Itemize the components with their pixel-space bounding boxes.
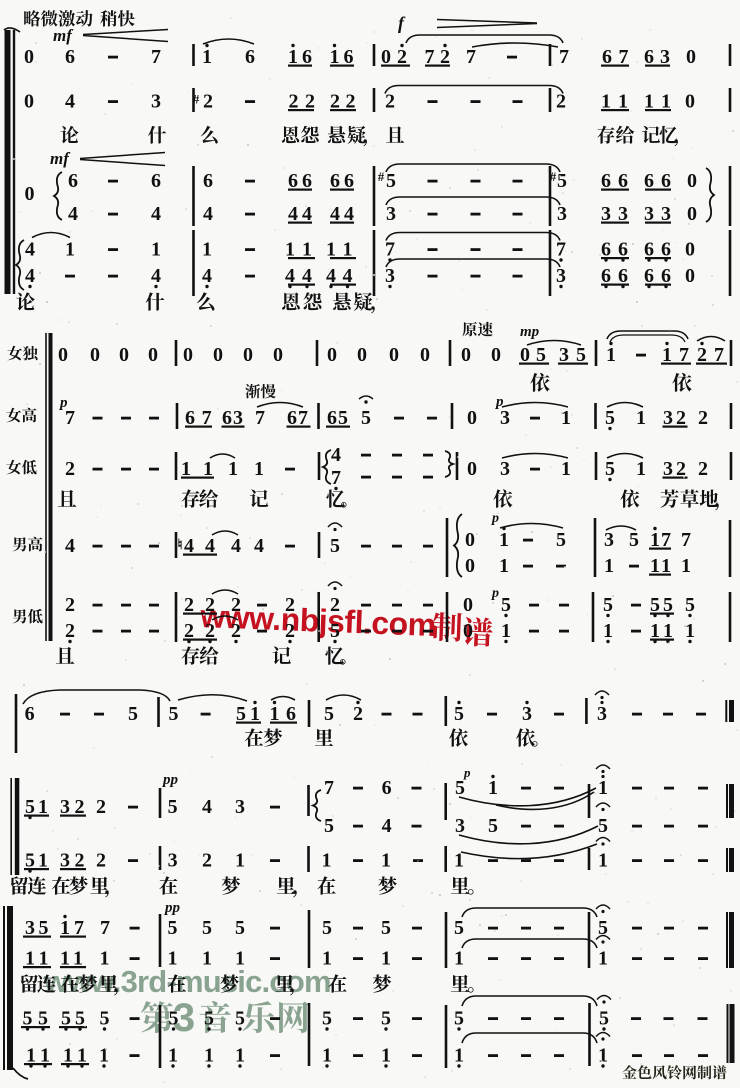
svg-text:5: 5 bbox=[330, 535, 340, 557]
svg-text:6: 6 bbox=[203, 170, 213, 192]
svg-text:7: 7 bbox=[151, 46, 161, 68]
svg-text:1: 1 bbox=[501, 620, 511, 642]
svg-text:0: 0 bbox=[420, 344, 430, 366]
svg-text:5: 5 bbox=[557, 170, 567, 192]
svg-text:0: 0 bbox=[465, 529, 475, 551]
svg-text:0: 0 bbox=[465, 555, 475, 577]
svg-text:5: 5 bbox=[605, 458, 615, 480]
svg-text:2: 2 bbox=[96, 850, 106, 872]
svg-text:3: 3 bbox=[385, 265, 395, 287]
svg-text:5: 5 bbox=[685, 594, 695, 616]
svg-text:5: 5 bbox=[322, 917, 332, 939]
svg-text:4: 4 bbox=[151, 265, 161, 287]
svg-text:1: 1 bbox=[598, 948, 608, 970]
svg-text:7: 7 bbox=[559, 46, 569, 68]
svg-text:0: 0 bbox=[148, 344, 158, 366]
svg-text:p: p bbox=[463, 765, 471, 780]
svg-text:2: 2 bbox=[202, 850, 212, 872]
svg-text:1: 1 bbox=[228, 458, 238, 480]
svg-text:4: 4 bbox=[382, 815, 392, 837]
svg-text:3: 3 bbox=[455, 815, 465, 837]
svg-text:7: 7 bbox=[100, 917, 110, 939]
svg-text:1: 1 bbox=[606, 344, 616, 366]
svg-text:1: 1 bbox=[204, 1045, 214, 1067]
svg-text:1: 1 bbox=[381, 948, 391, 970]
svg-text:2: 2 bbox=[65, 620, 75, 642]
svg-text:mf: mf bbox=[50, 149, 71, 168]
svg-text:0: 0 bbox=[491, 344, 501, 366]
svg-text:1: 1 bbox=[100, 948, 110, 970]
svg-text:0: 0 bbox=[213, 344, 223, 366]
svg-text:5: 5 bbox=[204, 1008, 214, 1030]
svg-text:5: 5 bbox=[322, 1008, 332, 1030]
svg-text:1: 1 bbox=[598, 1045, 608, 1067]
svg-text:6: 6 bbox=[25, 703, 35, 725]
svg-text:5: 5 bbox=[235, 1008, 245, 1030]
svg-text:1: 1 bbox=[598, 850, 608, 872]
svg-text:0: 0 bbox=[90, 344, 100, 366]
svg-text:0: 0 bbox=[389, 344, 399, 366]
svg-text:1: 1 bbox=[322, 850, 332, 872]
svg-text:1: 1 bbox=[235, 850, 245, 872]
svg-text:6: 6 bbox=[382, 777, 392, 799]
svg-text:7: 7 bbox=[556, 239, 566, 261]
svg-text:5: 5 bbox=[501, 594, 511, 616]
svg-text:5: 5 bbox=[599, 1008, 609, 1030]
svg-text:6: 6 bbox=[245, 46, 255, 68]
svg-text:3: 3 bbox=[556, 265, 566, 287]
svg-text:4: 4 bbox=[203, 203, 213, 225]
svg-text:0: 0 bbox=[327, 344, 337, 366]
svg-text:2: 2 bbox=[203, 91, 213, 113]
svg-text:5: 5 bbox=[202, 917, 212, 939]
svg-text:6: 6 bbox=[65, 46, 75, 68]
svg-text:5: 5 bbox=[100, 1008, 110, 1030]
svg-text:2: 2 bbox=[698, 458, 708, 480]
svg-text:2: 2 bbox=[698, 407, 708, 429]
svg-text:1: 1 bbox=[636, 407, 646, 429]
svg-text:1: 1 bbox=[254, 458, 264, 480]
svg-text:6: 6 bbox=[68, 170, 78, 192]
svg-text:0: 0 bbox=[273, 344, 283, 366]
svg-text:4: 4 bbox=[65, 535, 75, 557]
svg-text:1: 1 bbox=[168, 948, 178, 970]
svg-text:5: 5 bbox=[381, 917, 391, 939]
svg-text:5: 5 bbox=[386, 170, 396, 192]
svg-text:2: 2 bbox=[65, 594, 75, 616]
svg-text:1: 1 bbox=[235, 948, 245, 970]
svg-text:5: 5 bbox=[603, 594, 613, 616]
svg-text:0: 0 bbox=[24, 91, 34, 113]
svg-text:5: 5 bbox=[454, 703, 464, 725]
svg-text:1: 1 bbox=[235, 1045, 245, 1067]
svg-text:1: 1 bbox=[603, 620, 613, 642]
svg-text:7: 7 bbox=[466, 46, 476, 68]
svg-text:7: 7 bbox=[324, 777, 334, 799]
svg-text:3: 3 bbox=[235, 796, 245, 818]
svg-text:0: 0 bbox=[685, 239, 695, 261]
svg-text:5: 5 bbox=[361, 407, 371, 429]
svg-text:0: 0 bbox=[686, 46, 696, 68]
svg-text:3: 3 bbox=[500, 458, 510, 480]
svg-text:0: 0 bbox=[58, 344, 68, 366]
svg-text:5: 5 bbox=[128, 703, 138, 725]
svg-text:1: 1 bbox=[488, 777, 498, 799]
svg-text:0: 0 bbox=[357, 344, 367, 366]
svg-text:#: # bbox=[378, 169, 385, 184]
svg-text:5: 5 bbox=[488, 815, 498, 837]
svg-text:3: 3 bbox=[557, 203, 567, 225]
svg-text:4: 4 bbox=[25, 239, 35, 261]
svg-text:1: 1 bbox=[202, 46, 212, 68]
svg-text:p: p bbox=[491, 586, 499, 601]
svg-text:5: 5 bbox=[454, 1008, 464, 1030]
svg-text:4: 4 bbox=[68, 203, 78, 225]
svg-text:0: 0 bbox=[467, 458, 477, 480]
svg-text:5: 5 bbox=[629, 529, 639, 551]
svg-text:3: 3 bbox=[500, 407, 510, 429]
svg-text:5: 5 bbox=[330, 620, 340, 642]
svg-text:1: 1 bbox=[681, 555, 691, 577]
svg-text:#: # bbox=[550, 169, 557, 184]
svg-text:3: 3 bbox=[597, 703, 607, 725]
svg-text:pp: pp bbox=[161, 772, 179, 788]
svg-text:2: 2 bbox=[385, 91, 395, 113]
svg-text:4: 4 bbox=[151, 203, 161, 225]
svg-text:7: 7 bbox=[331, 467, 341, 489]
svg-text:3: 3 bbox=[522, 703, 532, 725]
svg-text:3: 3 bbox=[151, 91, 161, 113]
svg-text:0: 0 bbox=[25, 183, 35, 205]
svg-text:3: 3 bbox=[168, 850, 178, 872]
svg-text:5: 5 bbox=[381, 1008, 391, 1030]
svg-text:5: 5 bbox=[235, 917, 245, 939]
svg-text:0: 0 bbox=[463, 594, 473, 616]
svg-text:1: 1 bbox=[168, 1045, 178, 1067]
svg-text:1: 1 bbox=[322, 1045, 332, 1067]
svg-text:7: 7 bbox=[385, 239, 395, 261]
svg-text:2: 2 bbox=[330, 594, 340, 616]
svg-text:1: 1 bbox=[322, 948, 332, 970]
svg-text:4: 4 bbox=[65, 91, 75, 113]
svg-text:1: 1 bbox=[561, 458, 571, 480]
svg-text:1: 1 bbox=[202, 948, 212, 970]
svg-text:4: 4 bbox=[202, 265, 212, 287]
svg-text:1: 1 bbox=[499, 529, 509, 551]
svg-text:4: 4 bbox=[231, 535, 241, 557]
svg-text:#: # bbox=[193, 92, 200, 107]
svg-text:5: 5 bbox=[169, 1008, 179, 1030]
svg-text:0: 0 bbox=[687, 203, 697, 225]
svg-text:7: 7 bbox=[681, 529, 691, 551]
svg-text:4: 4 bbox=[331, 444, 341, 466]
svg-text:1: 1 bbox=[598, 777, 608, 799]
svg-text:2: 2 bbox=[285, 620, 295, 642]
svg-text:0: 0 bbox=[243, 344, 253, 366]
svg-text:4: 4 bbox=[254, 535, 264, 557]
svg-text:5: 5 bbox=[168, 796, 178, 818]
svg-text:1: 1 bbox=[636, 458, 646, 480]
svg-text:0: 0 bbox=[183, 344, 193, 366]
svg-text:3: 3 bbox=[604, 529, 614, 551]
svg-text:0: 0 bbox=[24, 46, 34, 68]
svg-text:5: 5 bbox=[324, 703, 334, 725]
svg-text:mp: mp bbox=[520, 324, 540, 340]
svg-text:1: 1 bbox=[202, 239, 212, 261]
svg-text:5: 5 bbox=[455, 777, 465, 799]
svg-text:2: 2 bbox=[353, 703, 363, 725]
svg-text:1: 1 bbox=[685, 620, 695, 642]
svg-text:2: 2 bbox=[231, 594, 241, 616]
svg-text:1: 1 bbox=[499, 555, 509, 577]
svg-text:0: 0 bbox=[685, 265, 695, 287]
svg-text:6: 6 bbox=[151, 170, 161, 192]
svg-text:0: 0 bbox=[687, 170, 697, 192]
svg-text:2: 2 bbox=[556, 91, 566, 113]
svg-text:2: 2 bbox=[285, 594, 295, 616]
svg-text:5: 5 bbox=[556, 529, 566, 551]
svg-text:0: 0 bbox=[463, 620, 473, 642]
svg-text:7: 7 bbox=[255, 407, 265, 429]
svg-text:5: 5 bbox=[324, 815, 334, 837]
svg-text:♮: ♮ bbox=[177, 538, 182, 553]
svg-text:5: 5 bbox=[168, 917, 178, 939]
svg-text:1: 1 bbox=[99, 1045, 109, 1067]
svg-text:0: 0 bbox=[467, 407, 477, 429]
svg-text:5: 5 bbox=[454, 917, 464, 939]
svg-text:1: 1 bbox=[561, 407, 571, 429]
svg-text:1: 1 bbox=[151, 239, 161, 261]
svg-text:0: 0 bbox=[685, 91, 695, 113]
svg-text:mf: mf bbox=[53, 26, 74, 45]
svg-text:2: 2 bbox=[231, 620, 241, 642]
svg-text:7: 7 bbox=[65, 407, 75, 429]
svg-text:5: 5 bbox=[598, 815, 608, 837]
svg-text:3: 3 bbox=[386, 203, 396, 225]
svg-text:1: 1 bbox=[381, 1045, 391, 1067]
svg-text:1: 1 bbox=[604, 555, 614, 577]
svg-text:pp: pp bbox=[163, 900, 181, 916]
svg-text:0: 0 bbox=[119, 344, 129, 366]
svg-text:1: 1 bbox=[65, 239, 75, 261]
svg-text:5: 5 bbox=[605, 407, 615, 429]
svg-text:4: 4 bbox=[25, 265, 35, 287]
svg-text:1: 1 bbox=[454, 948, 464, 970]
svg-text:5: 5 bbox=[169, 703, 179, 725]
svg-text:2: 2 bbox=[96, 796, 106, 818]
svg-text:1: 1 bbox=[454, 1045, 464, 1067]
svg-text:1: 1 bbox=[381, 850, 391, 872]
svg-text:0: 0 bbox=[461, 344, 471, 366]
svg-text:4: 4 bbox=[202, 796, 212, 818]
